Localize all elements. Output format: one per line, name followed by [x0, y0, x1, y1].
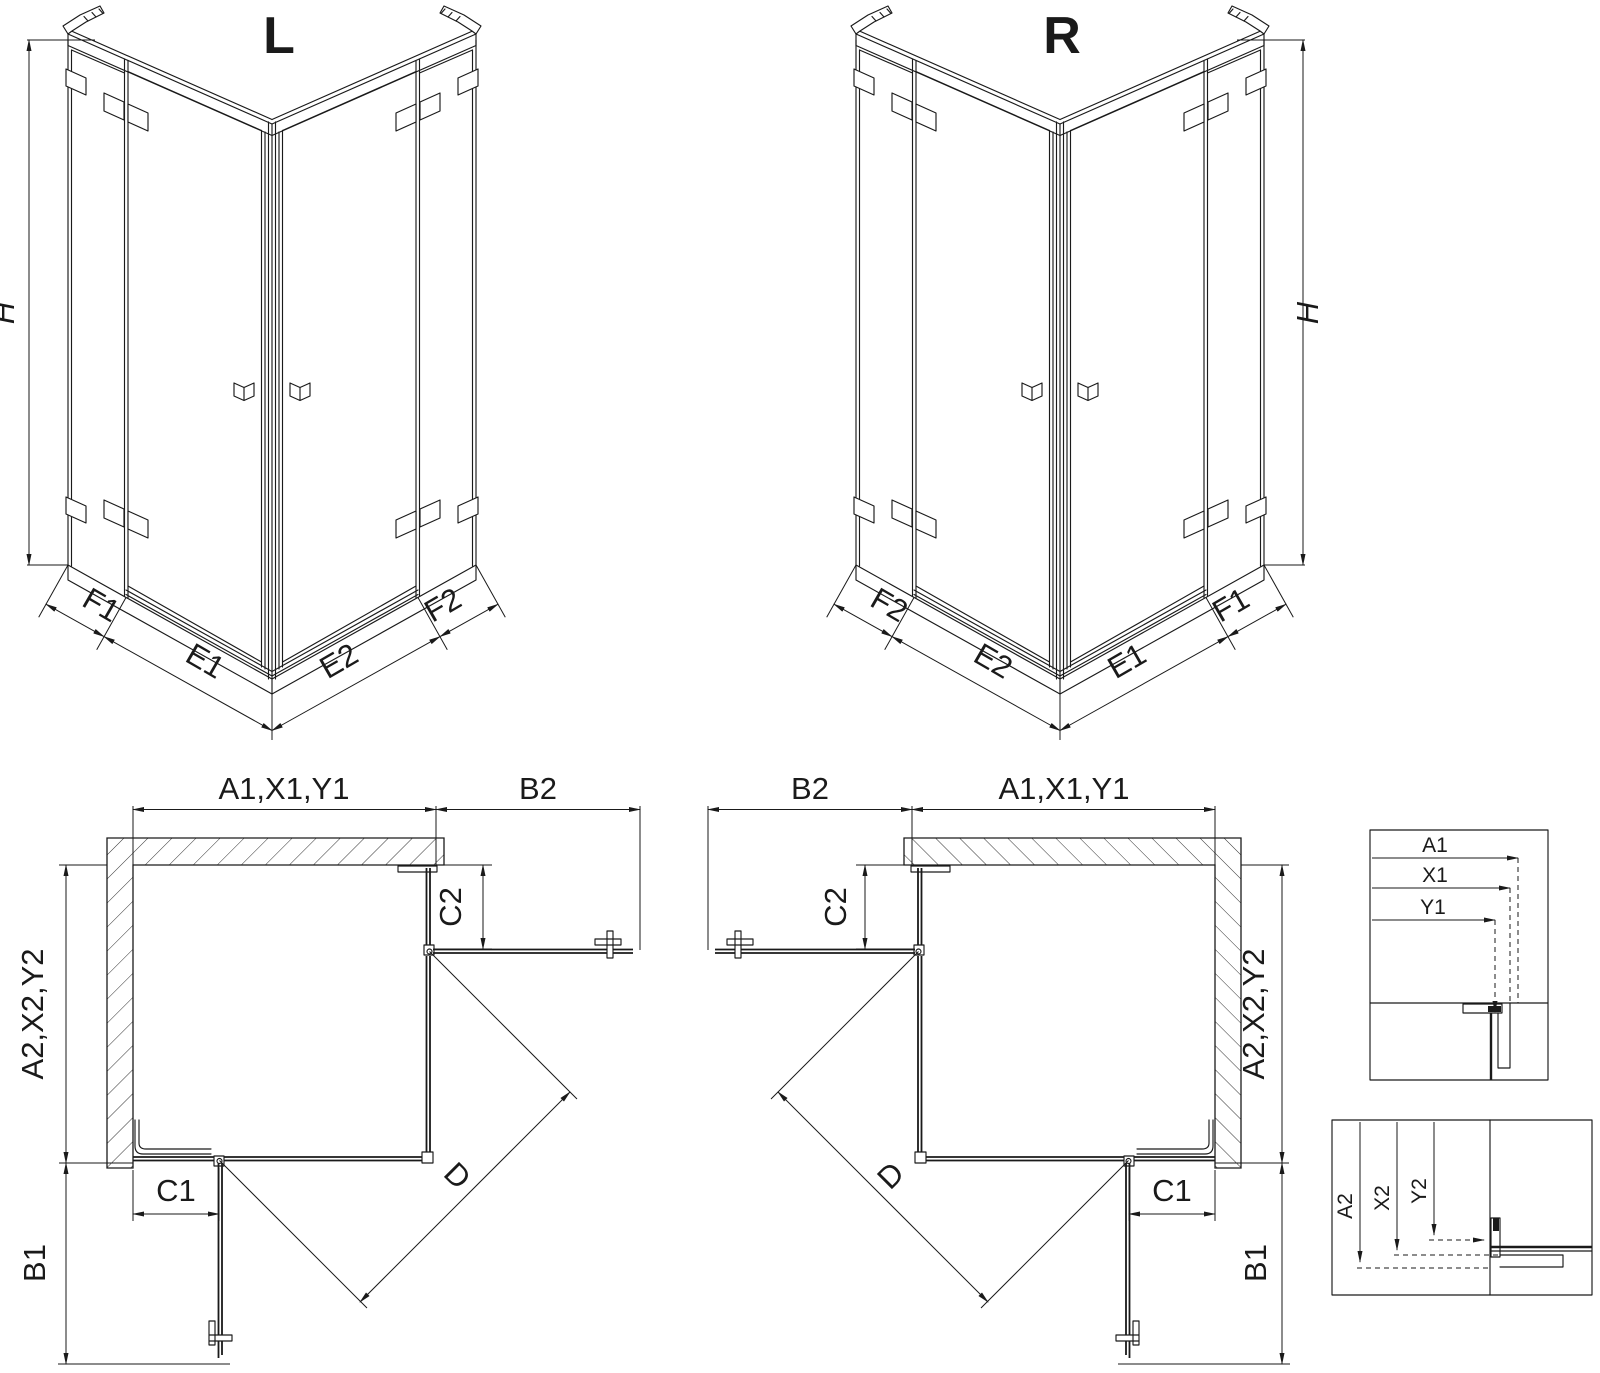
shower-enclosure-technical-diagram: L H F1 E1 E2 F2 R H F2 E2 E1 F1 A1,X1,Y1… [0, 0, 1600, 1373]
dim-label-c1-right: C1 [1152, 1173, 1192, 1208]
dim-label-c2-left: C2 [433, 887, 468, 927]
detail-label-x1: X1 [1422, 864, 1448, 887]
variant-label-left: L [263, 7, 295, 65]
dim-label-f2-right: F2 [865, 581, 914, 629]
drawing-sheet: L H F1 E1 E2 F2 R H F2 E2 E1 F1 A1,X1,Y1… [0, 0, 1600, 1373]
dim-label-f1-left: F1 [77, 581, 126, 629]
detail-label-a1: A1 [1422, 834, 1448, 857]
dim-label-width-total-right: A1,X1,Y1 [999, 771, 1130, 806]
detail-label-y1: Y1 [1420, 896, 1446, 919]
dim-label-c1-left: C1 [156, 1173, 196, 1208]
dim-label-height-right: H [1290, 301, 1325, 324]
dim-label-door-b2-right: B2 [791, 771, 829, 806]
dim-label-c2-right: C2 [818, 887, 853, 927]
detail-width-measuring-points [1370, 830, 1548, 1080]
plan-view-right-variant [708, 806, 1290, 1364]
dim-label-width-total-left: A1,X1,Y1 [219, 771, 350, 806]
dim-label-door-b2-left: B2 [519, 771, 557, 806]
dim-label-door-b1-left: B1 [17, 1244, 52, 1282]
dim-label-door-b1-right: B1 [1238, 1244, 1273, 1282]
dim-label-height-left: H [0, 301, 21, 324]
dim-label-f1-right: F1 [1206, 581, 1255, 629]
detail-label-y2: Y2 [1408, 1178, 1431, 1204]
dim-label-f2-left: F2 [418, 581, 467, 629]
detail-label-x2: X2 [1371, 1185, 1394, 1211]
iso-view-left-variant [27, 6, 505, 740]
variant-label-right: R [1043, 7, 1081, 65]
plan-view-left-variant [58, 806, 640, 1364]
dim-label-depth-total-right: A2,X2,Y2 [1236, 949, 1271, 1080]
iso-view-right-variant [827, 6, 1305, 740]
detail-label-a2: A2 [1334, 1193, 1357, 1219]
dim-label-depth-total-left: A2,X2,Y2 [15, 949, 50, 1080]
